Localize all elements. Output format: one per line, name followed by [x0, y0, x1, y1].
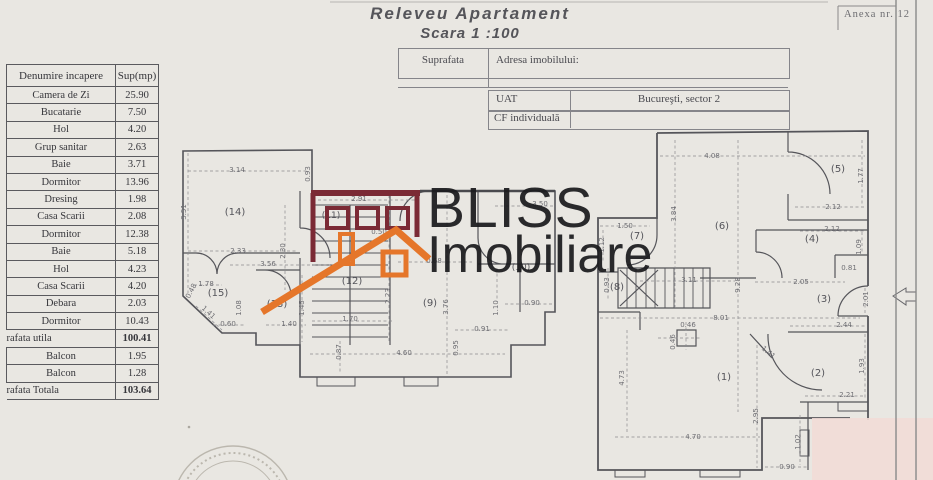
apartment-survey-document: (14)(15)(13)(12)(11)(9)(10)3.143.510.932… — [0, 0, 933, 480]
col-area-header: Sup(mp) — [116, 65, 159, 87]
dimension-label: 0.93 — [603, 277, 611, 293]
pink-highlight-block — [812, 418, 933, 480]
dimension-label: 0.95 — [452, 340, 460, 356]
room-number-label: (6) — [715, 221, 729, 232]
dimension-label: 2.44 — [836, 321, 852, 329]
logo-window-icon — [357, 208, 378, 228]
room-area-cell: 10.43 — [116, 313, 159, 330]
room-name-cell: Dormitor — [7, 313, 116, 330]
room-number-label: (1) — [717, 372, 731, 383]
dimension-label: 3.84 — [670, 206, 678, 222]
dimension-label: 1.09 — [855, 239, 863, 255]
title-block: Releveu Apartament Scara 1 :100 — [330, 4, 610, 42]
room-area-cell: 1.28 — [116, 365, 159, 382]
table-row: Balcon1.95 — [7, 347, 159, 364]
table-row: Dormitor12.38 — [7, 226, 159, 243]
dimension-label: 1.40 — [281, 320, 297, 328]
room-name-cell: rafata Totala — [7, 382, 116, 399]
table-row: Balcon1.28 — [7, 365, 159, 382]
dimension-label: 0.81 — [841, 264, 857, 272]
room-name-cell: Grup sanitar — [7, 139, 116, 156]
room-area-cell: 1.98 — [116, 191, 159, 208]
plan-title: Releveu Apartament — [330, 4, 610, 24]
room-area-cell: 2.03 — [116, 295, 159, 312]
dimension-label: 0.46 — [669, 334, 677, 350]
room-name-cell: Debara — [7, 295, 116, 312]
room-area-cell: 13.96 — [116, 173, 159, 190]
dimension-label: 3.50 — [532, 200, 548, 208]
room-name-cell: Dormitor — [7, 226, 116, 243]
room-area-table-body: Camera de Zi25.90Bucatarie7.50Hol4.20Gru… — [7, 87, 159, 400]
room-number-label: (10) — [512, 263, 530, 273]
dimension-label: 0.60 — [220, 320, 236, 328]
room-area-cell: 1.95 — [116, 347, 159, 364]
room-area-table: Denumire incapere Sup(mp) Camera de Zi25… — [6, 64, 159, 400]
dimension-label: 4.60 — [396, 349, 412, 357]
dimension-label: 3.14 — [229, 166, 245, 174]
cf-label: CF individuală — [494, 112, 560, 124]
dimension-label: 0.48 — [184, 282, 198, 300]
room-area-cell: 5.18 — [116, 243, 159, 260]
dimension-label: 0.46 — [680, 321, 696, 329]
adresa-label: Adresa imobilului: — [496, 54, 579, 66]
table-row: Camera de Zi25.90 — [7, 87, 159, 104]
dimension-label: 2.12 — [824, 225, 840, 233]
room-name-cell: Dresing — [7, 191, 116, 208]
dimension-label: 1.77 — [857, 168, 865, 184]
room-number-label: (8) — [610, 282, 624, 293]
room-area-cell: 4.20 — [116, 121, 159, 138]
suprafata-label: Suprafata — [398, 54, 488, 66]
scale-label: Scara 1 :100 — [330, 25, 610, 42]
table-row: Casa Scarii4.20 — [7, 278, 159, 295]
dimension-label: 3.76 — [442, 299, 450, 315]
room-name-cell: Hol — [7, 121, 116, 138]
dimension-label: 1.45 — [298, 300, 306, 316]
notary-stamp — [173, 426, 293, 480]
dimension-label: 2.12 — [825, 203, 841, 211]
room-number-label: (3) — [817, 294, 831, 305]
dimension-label: 2.23 — [384, 288, 392, 304]
room-area-cell: 100.41 — [116, 330, 159, 347]
table-row: Dormitor10.43 — [7, 313, 159, 330]
table-row: Hol4.20 — [7, 121, 159, 138]
dimension-label: 0.87 — [335, 344, 343, 360]
table-header-row: Denumire incapere Sup(mp) — [7, 65, 159, 87]
page-border — [896, 0, 916, 480]
table-row: Baie5.18 — [7, 243, 159, 260]
room-number-label: (11) — [322, 211, 340, 221]
room-area-cell: 4.20 — [116, 278, 159, 295]
room-number-label: (4) — [805, 234, 819, 245]
table-row: Casa Scarii2.08 — [7, 208, 159, 225]
col-name-header: Denumire incapere — [7, 65, 116, 87]
room-number-label: (7) — [630, 231, 644, 242]
info-table-divider — [488, 48, 489, 88]
room-number-label: (5) — [831, 164, 845, 175]
room-area-cell: 25.90 — [116, 87, 159, 104]
dimension-label: 9.28 — [734, 277, 742, 293]
table-row: rafata utila100.41 — [7, 330, 159, 347]
room-number-label: (15) — [208, 288, 229, 299]
dimension-label: 1.08 — [235, 300, 243, 316]
dimension-label: 1.12 — [598, 237, 606, 253]
dimension-label: 2.30 — [279, 243, 287, 259]
dimension-label: 2.01 — [862, 291, 870, 307]
room-name-cell: Baie — [7, 243, 116, 260]
bliss-logo-house-icon — [262, 191, 555, 312]
dimension-label: 1.41 — [760, 344, 777, 360]
annex-label: Anexa nr. 12 — [844, 9, 910, 20]
dimension-label: 0.90 — [779, 463, 795, 471]
room-area-cell: 103.64 — [116, 382, 159, 399]
dimension-label: 2.33 — [230, 247, 246, 255]
room-name-cell: Camera de Zi — [7, 87, 116, 104]
table-row: Bucatarie7.50 — [7, 104, 159, 121]
table-row: Grup sanitar2.63 — [7, 139, 159, 156]
dimension-label: 1.02 — [794, 434, 802, 450]
room-name-cell: rafata utila — [7, 330, 116, 347]
room-area-cell: 4.23 — [116, 260, 159, 277]
room-name-cell: Dormitor — [7, 173, 116, 190]
uat-value: Bucureşti, sector 2 — [570, 93, 788, 105]
table-row: rafata Totala103.64 — [7, 382, 159, 399]
info-table-rule — [398, 87, 788, 88]
room-area-cell: 2.63 — [116, 139, 159, 156]
logo-window-icon — [383, 252, 406, 275]
dimension-label: 4.70 — [685, 433, 701, 441]
dimension-label: 0.93 — [304, 166, 312, 182]
dimension-label: 1.70 — [342, 315, 358, 323]
room-number-label: (12) — [342, 276, 363, 287]
dimension-label: 1.78 — [198, 280, 214, 288]
room-area-cell: 7.50 — [116, 104, 159, 121]
room-name-cell: Casa Scarii — [7, 208, 116, 225]
room-name-cell: Casa Scarii — [7, 278, 116, 295]
dimension-label: 0.91 — [474, 325, 490, 333]
room-name-cell: Bucatarie — [7, 104, 116, 121]
table-row: Dormitor13.96 — [7, 173, 159, 190]
dimension-label: 1.93 — [858, 358, 866, 374]
dimension-label: 2.91 — [351, 195, 367, 203]
room-area-cell: 2.08 — [116, 208, 159, 225]
room-area-cell: 12.38 — [116, 226, 159, 243]
dimension-label: 1.41 — [200, 304, 217, 320]
dimension-label: 8.01 — [713, 314, 729, 322]
dimension-label: 3.56 — [260, 260, 276, 268]
room-number-label: (9) — [423, 298, 437, 309]
table-row: Hol4.23 — [7, 260, 159, 277]
room-name-cell: Balcon — [7, 365, 116, 382]
table-row: Baie3.71 — [7, 156, 159, 173]
room-number-label: (2) — [811, 368, 825, 379]
dimension-label: 3.51 — [180, 204, 188, 220]
room-number-label: (14) — [225, 207, 246, 218]
room-area-cell: 3.71 — [116, 156, 159, 173]
room-name-cell: Baie — [7, 156, 116, 173]
dimension-label: 4.08 — [704, 152, 720, 160]
room-name-cell: Hol — [7, 260, 116, 277]
floor-plan-left — [183, 150, 555, 386]
dimension-label: 3.11 — [681, 276, 697, 284]
dimension-label: 2.21 — [839, 391, 855, 399]
dimension-label: 2.95 — [752, 408, 760, 424]
dimension-label: 0.90 — [524, 299, 540, 307]
dimension-label: 1.10 — [492, 300, 500, 316]
table-row: Dresing1.98 — [7, 191, 159, 208]
uat-label: UAT — [496, 93, 517, 105]
dimension-label: 2.05 — [793, 278, 809, 286]
dimension-label: 4.73 — [618, 370, 626, 386]
dimension-label: 1.50 — [617, 222, 633, 230]
room-name-cell: Balcon — [7, 347, 116, 364]
table-row: Debara2.03 — [7, 295, 159, 312]
